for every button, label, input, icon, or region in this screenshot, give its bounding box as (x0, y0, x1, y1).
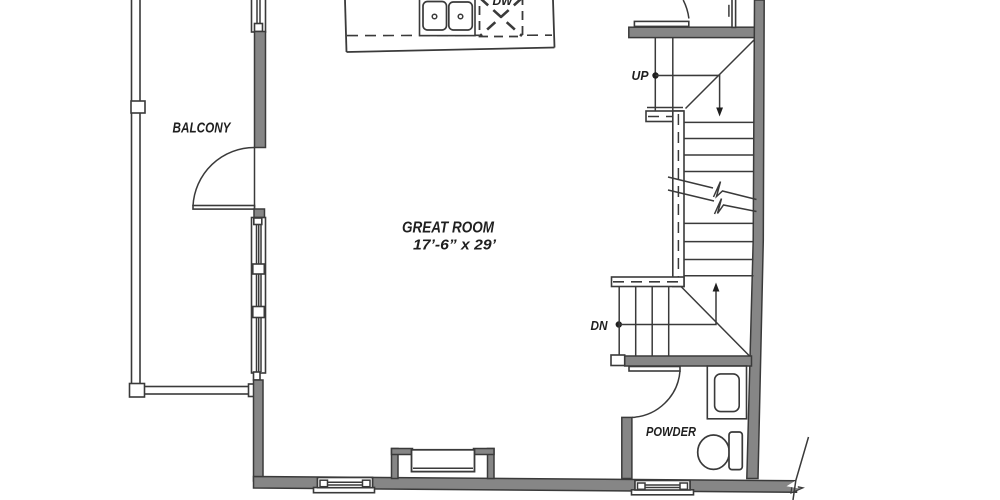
svg-text:BALCONY: BALCONY (173, 120, 233, 137)
svg-text:DW: DW (493, 0, 514, 8)
svg-text:GREAT ROOM: GREAT ROOM (402, 220, 495, 237)
svg-text:UP: UP (632, 68, 649, 83)
svg-text:17’-6” x 29’: 17’-6” x 29’ (413, 237, 497, 254)
svg-text:DN: DN (591, 318, 609, 333)
svg-text:POWDER: POWDER (646, 424, 697, 439)
